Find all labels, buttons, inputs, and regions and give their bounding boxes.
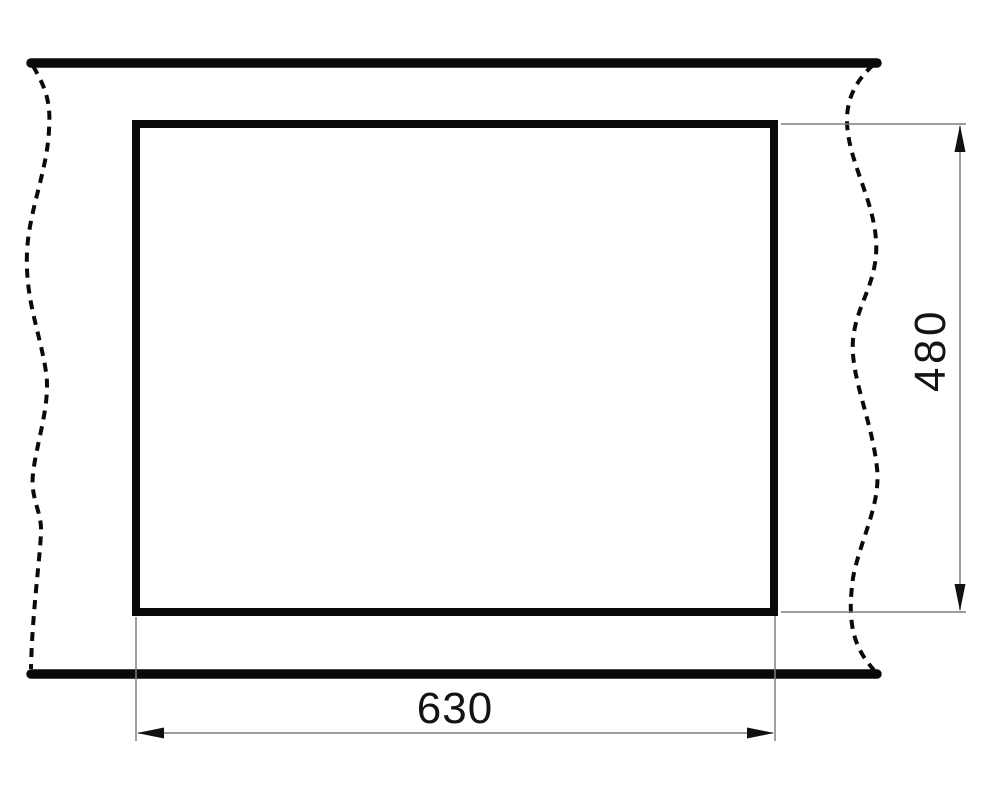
width-dimension-label: 630 [417, 687, 493, 731]
height-arrow-down-icon [955, 584, 966, 611]
drawing-canvas: 630 480 [0, 0, 1000, 804]
cutout-rectangle [136, 124, 774, 612]
height-arrow-up-icon [955, 125, 966, 152]
dimension-drawing [0, 0, 1000, 804]
right-wavy-break-line [847, 65, 878, 670]
width-arrow-right-icon [747, 728, 774, 739]
height-dimension-label: 480 [909, 308, 953, 392]
width-arrow-left-icon [137, 728, 164, 739]
left-wavy-break-line [27, 66, 50, 669]
